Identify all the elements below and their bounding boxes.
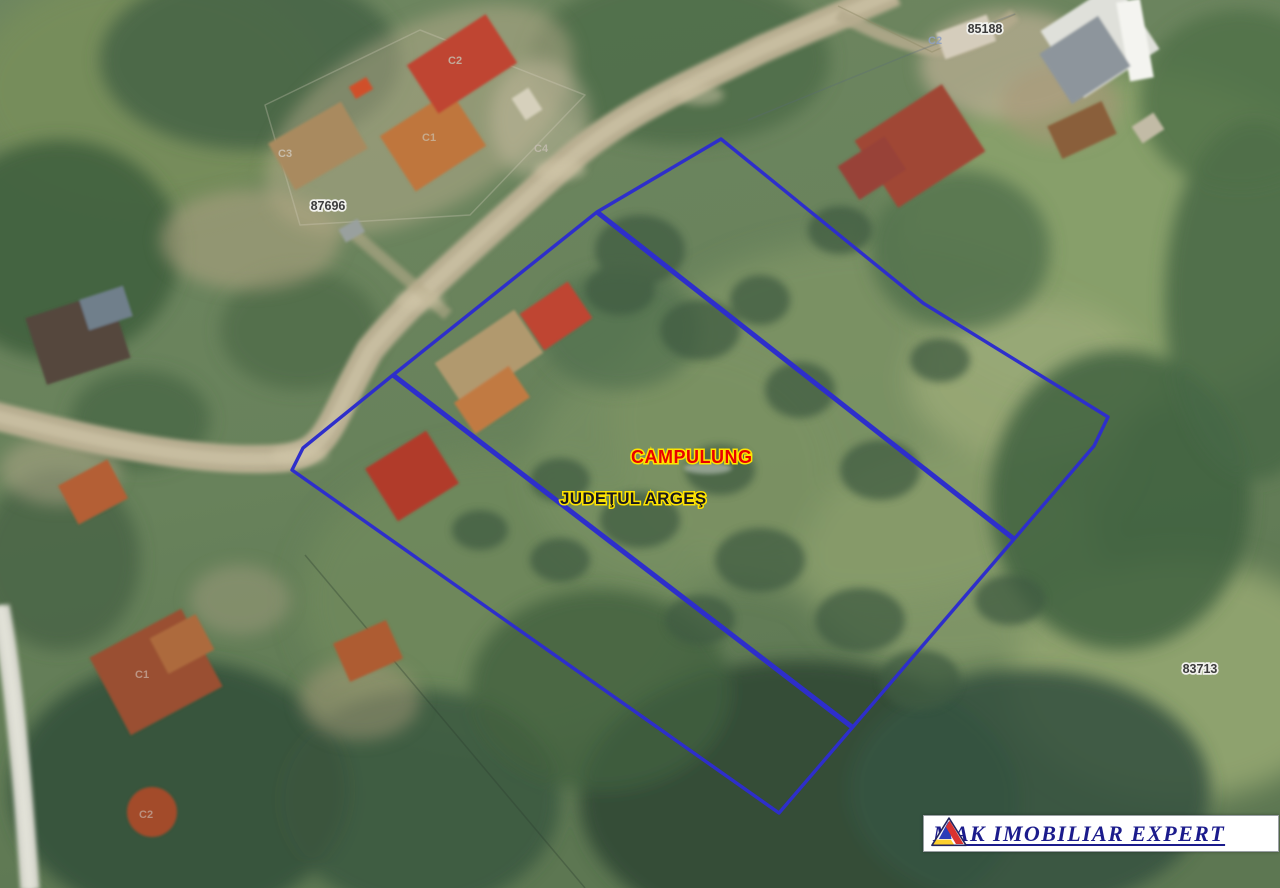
construction-label: C2 — [139, 809, 153, 821]
satellite-image: C2 C1 C3 C4 C2 C1 C2 85188 87696 83713 C… — [0, 0, 1280, 888]
construction-label: C4 — [534, 143, 549, 155]
construction-label: C1 — [135, 669, 149, 681]
county-label: JUDEŢUL ARGEŞ — [560, 489, 707, 508]
logo-triangle-icon — [930, 816, 968, 848]
logo-text: MAK IMOBILIAR EXPERT — [933, 821, 1225, 847]
cadastral-label: 83713 — [1183, 662, 1218, 676]
construction-label: C3 — [278, 148, 292, 160]
map-canvas: C2 C1 C3 C4 C2 C1 C2 85188 87696 83713 C… — [0, 0, 1280, 888]
construction-label: C1 — [422, 132, 436, 144]
construction-label: C2 — [448, 55, 462, 67]
cadastral-label: 85188 — [968, 22, 1003, 36]
logo-banner: MAK IMOBILIAR EXPERT — [923, 815, 1279, 852]
cadastral-label: 87696 — [311, 199, 346, 213]
construction-label: C2 — [928, 35, 942, 47]
city-label: CAMPULUNG — [631, 447, 753, 467]
